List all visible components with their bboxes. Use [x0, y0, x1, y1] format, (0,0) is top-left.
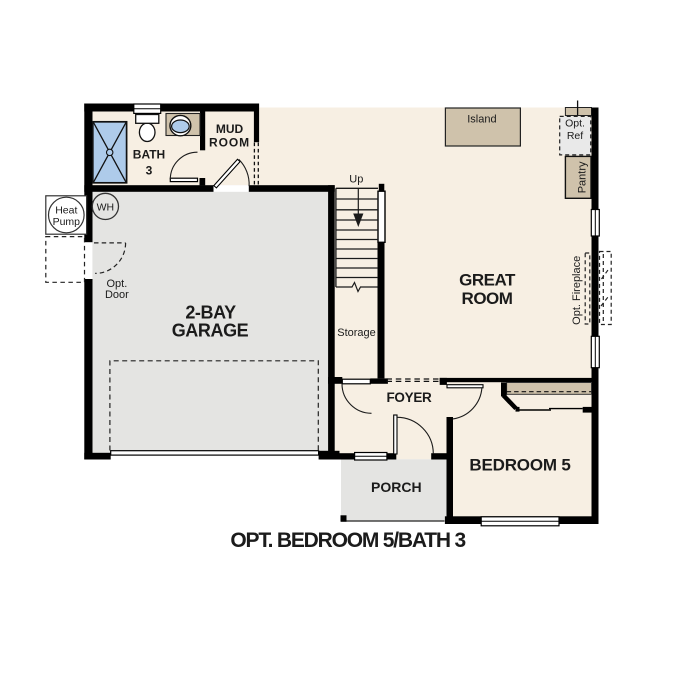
svg-text:Pantry: Pantry	[576, 161, 588, 193]
svg-text:FOYER: FOYER	[386, 390, 432, 405]
svg-text:PORCH: PORCH	[371, 479, 422, 495]
svg-text:GREAT: GREAT	[459, 271, 516, 290]
svg-text:Storage: Storage	[337, 327, 376, 339]
svg-text:Opt.: Opt.	[565, 117, 585, 129]
svg-text:ROOM: ROOM	[209, 136, 250, 150]
svg-text:Ref: Ref	[567, 130, 583, 142]
svg-text:Opt.: Opt.	[107, 278, 128, 290]
svg-text:ROOM: ROOM	[462, 289, 513, 308]
svg-text:BATH: BATH	[133, 148, 165, 162]
svg-text:3: 3	[146, 163, 153, 177]
svg-text:Heat: Heat	[55, 204, 77, 216]
svg-text:Opt. Fireplace: Opt. Fireplace	[571, 256, 583, 325]
svg-text:OPT. BEDROOM 5/BATH 3: OPT. BEDROOM 5/BATH 3	[230, 529, 465, 552]
svg-text:Pump: Pump	[53, 216, 81, 228]
svg-text:GARAGE: GARAGE	[172, 320, 249, 340]
svg-text:MUD: MUD	[216, 122, 244, 136]
svg-text:Island: Island	[467, 114, 496, 126]
svg-text:2-BAY: 2-BAY	[185, 302, 236, 322]
svg-text:WH: WH	[97, 201, 115, 213]
svg-text:Door: Door	[105, 289, 129, 301]
svg-text:BEDROOM 5: BEDROOM 5	[469, 456, 570, 475]
svg-text:Up: Up	[349, 173, 363, 185]
